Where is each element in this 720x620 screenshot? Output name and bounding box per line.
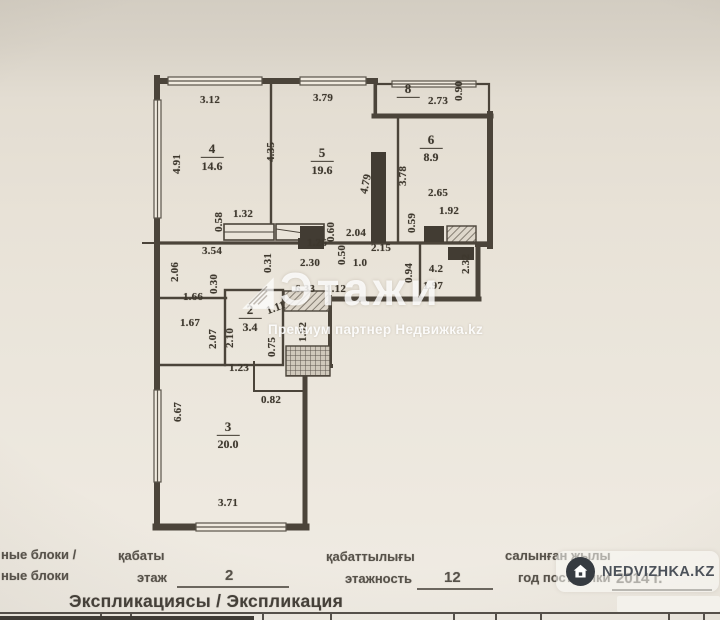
floors-label-kz: қабаттылығы <box>326 549 415 564</box>
table-top-border <box>0 612 720 614</box>
dimension-label: 2.06 <box>169 262 181 282</box>
dimension-label: 0.75 <box>266 337 278 357</box>
room-number: 4 <box>201 142 224 158</box>
room-label: 519.6 <box>311 146 334 178</box>
house-icon <box>566 557 595 586</box>
floorplan-photo: 3.123.792.730.904.914.354.793.782.651.92… <box>0 0 720 620</box>
table-divider <box>262 613 264 620</box>
dimension-label: 0.30 <box>208 274 220 294</box>
dimension-label: 0.58 <box>213 212 225 232</box>
room-area: 20.0 <box>217 436 240 452</box>
dimension-label: 3.12 <box>200 94 220 106</box>
floors-label-ru: этажность <box>345 571 412 586</box>
dimension-label: 2.04 <box>346 227 366 239</box>
dimension-label: 1.0 <box>353 257 367 269</box>
dimension-label: 2.10 <box>224 328 236 348</box>
room-area: 3.4 <box>239 319 262 335</box>
dimension-label: 1.32 <box>233 208 253 220</box>
dimension-label: 2.07 <box>207 329 219 349</box>
room-number: 5 <box>311 146 334 162</box>
table-divider <box>330 613 332 620</box>
dimension-label: 0.31 <box>262 253 274 273</box>
dimension-label: 0.50 <box>336 245 348 265</box>
dimension-label: 2.30 <box>300 257 320 269</box>
floor-plan-walls <box>0 0 720 620</box>
dimension-label: 1.97 <box>423 280 443 292</box>
table-row-shadow <box>0 616 254 620</box>
dimension-label: 6.33 <box>295 283 315 295</box>
room-label: 414.6 <box>201 142 224 174</box>
room-area: 19.6 <box>311 162 334 178</box>
table-corner-patch <box>617 596 720 612</box>
dimension-label: 4.2 <box>429 263 443 275</box>
dimension-label: 3.78 <box>397 166 409 186</box>
footer-left-line2: ные блоки <box>1 568 69 583</box>
table-divider <box>668 613 670 620</box>
room-label: 320.0 <box>217 420 240 452</box>
dimension-label: 0.59 <box>406 213 418 233</box>
dimension-label: 3.54 <box>202 245 222 257</box>
table-divider <box>703 613 705 620</box>
room-number: 6 <box>420 133 443 149</box>
floor-underline <box>177 586 289 588</box>
dimension-label: 0.90 <box>453 81 465 101</box>
table-divider <box>453 613 455 620</box>
dimension-label: 1.12 <box>326 283 346 295</box>
table-divider <box>495 613 497 620</box>
dimension-label: 1.92 <box>439 205 459 217</box>
dimension-label: 3.71 <box>218 497 238 509</box>
room-area: 8.9 <box>420 149 443 165</box>
dimension-label: 0.94 <box>403 263 415 283</box>
dimension-label: 2.32 <box>460 254 472 274</box>
dimension-label: 6.67 <box>172 402 184 422</box>
dimension-label: 3.79 <box>313 92 333 104</box>
dimension-label: 2.65 <box>428 187 448 199</box>
dimension-label: 4.35 <box>265 142 277 162</box>
floor-label-kz: қабаты <box>118 548 164 563</box>
floor-label-ru: этаж <box>137 570 167 585</box>
nedvizhka-watermark-badge: NEDVIZHKA.KZ <box>556 551 719 592</box>
dimension-label: 2.15 <box>371 242 391 254</box>
room-number: 8 <box>397 82 420 98</box>
explication-heading: Экспликациясы / Экспликация <box>69 591 343 612</box>
dimension-label: 2.73 <box>428 95 448 107</box>
dimension-label: 0.82 <box>261 394 281 406</box>
dimension-label: 1.67 <box>180 317 200 329</box>
floors-value: 12 <box>444 569 461 586</box>
floors-underline <box>417 588 493 590</box>
dimension-label: 1.23 <box>229 362 249 374</box>
footer-left-line1: ные блоки / <box>1 547 76 562</box>
room-label: 68.9 <box>420 133 443 165</box>
room-number: 2 <box>239 303 262 319</box>
dimension-label: 1.66 <box>183 291 203 303</box>
room-label: 8 <box>397 82 420 98</box>
room-area: 14.6 <box>201 158 224 174</box>
dimension-label: 0.60 <box>325 222 337 242</box>
table-divider <box>540 613 542 620</box>
floor-value: 2 <box>225 567 233 584</box>
dimension-label: 4.91 <box>171 154 183 174</box>
badge-text: NEDVIZHKA.KZ <box>602 564 715 580</box>
room-number: 3 <box>217 420 240 436</box>
watermark-subtitle: Премиум партнер Недвижка.kz <box>268 322 483 337</box>
room-label: 23.4 <box>239 303 262 335</box>
